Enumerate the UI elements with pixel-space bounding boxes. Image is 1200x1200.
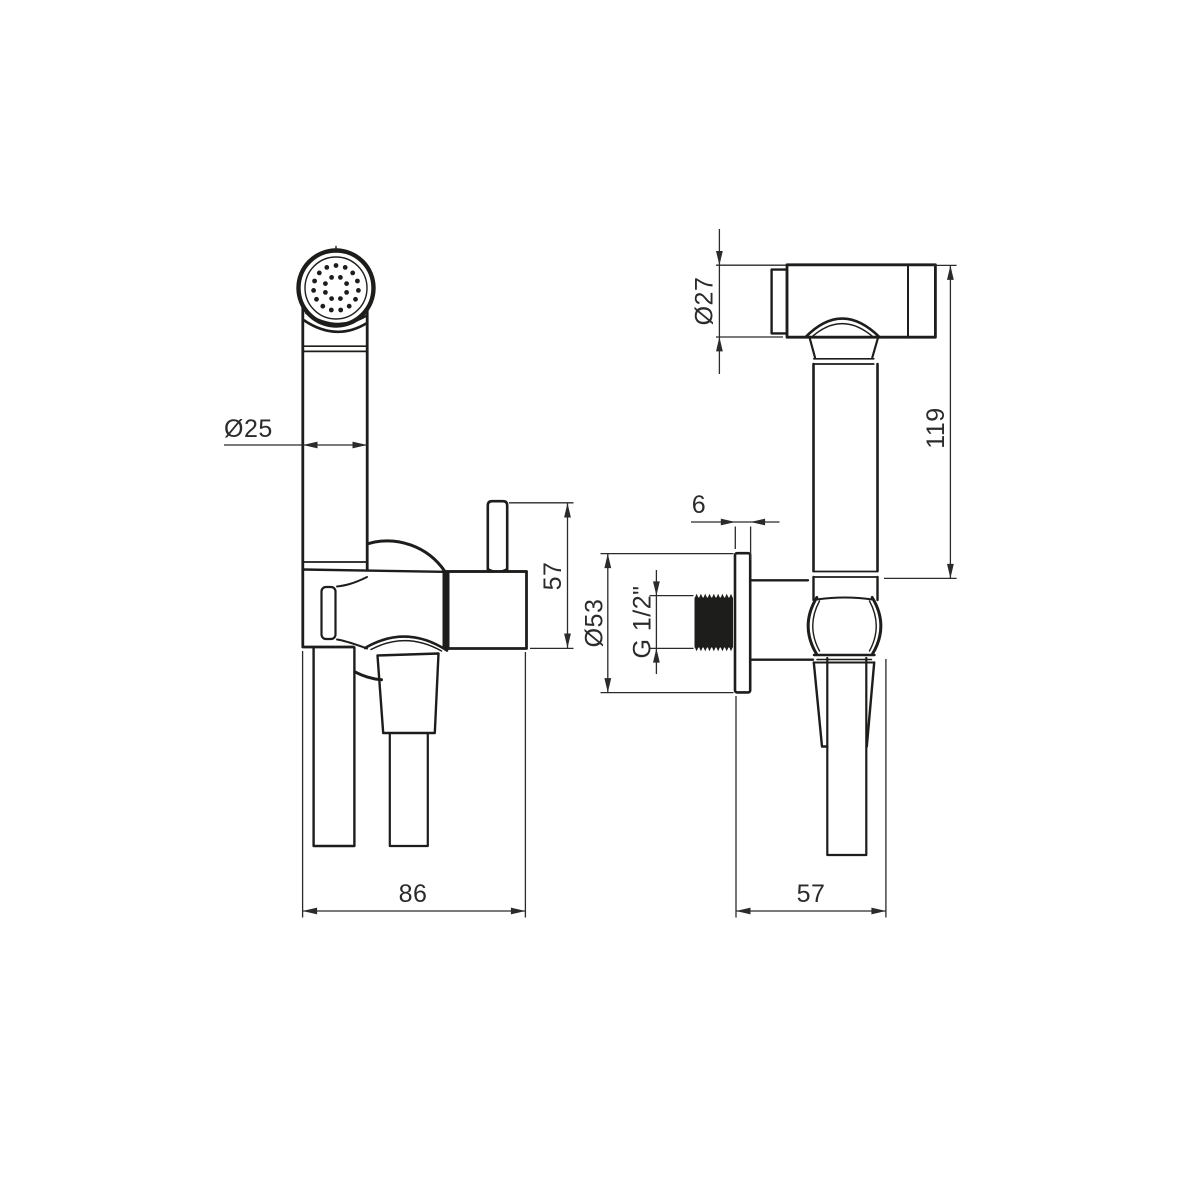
technical-drawing: Ø25 57 86 Ø27 119 6 Ø53 G 1/2" 57 bbox=[0, 0, 1200, 1200]
dim-line-head-diameter bbox=[716, 229, 786, 374]
side-neck-seam bbox=[814, 359, 874, 364]
side-holder bbox=[808, 598, 881, 660]
side-neck bbox=[810, 339, 878, 358]
arrow-valve-height-top bbox=[564, 503, 571, 518]
lower-tube-outline bbox=[314, 648, 355, 847]
bracket-inner-top bbox=[337, 577, 367, 587]
hose-tube bbox=[390, 733, 428, 846]
dim-label-head-diameter: Ø27 bbox=[691, 277, 719, 326]
arrow-handle-diameter-right bbox=[353, 442, 368, 449]
side-spray-head bbox=[772, 265, 936, 337]
escutcheon-arc-bottom bbox=[355, 672, 382, 680]
valve-body bbox=[447, 572, 527, 649]
front-hose bbox=[378, 654, 439, 847]
wall-pipe-lines bbox=[751, 580, 814, 659]
bracket-arch-outer bbox=[365, 637, 447, 651]
side-wall-pipe bbox=[751, 580, 814, 659]
side-handle-sides bbox=[814, 364, 878, 571]
side-escutcheon bbox=[735, 553, 750, 692]
side-thread bbox=[695, 594, 734, 651]
valve-shadow-band bbox=[443, 571, 450, 649]
arrow-escutcheon-diameter-top bbox=[604, 554, 611, 569]
front-handle-upper-seam bbox=[303, 346, 367, 351]
dim-label-side-depth: 57 bbox=[797, 880, 826, 908]
bracket-knob bbox=[322, 587, 336, 639]
arrow-escutcheon-thickness-left bbox=[721, 519, 736, 526]
dim-label-sprayer-length: 119 bbox=[922, 407, 950, 448]
arrow-escutcheon-diameter-bottom bbox=[604, 678, 611, 693]
thread-teeth-top bbox=[695, 594, 734, 599]
holder-top-edge bbox=[817, 598, 872, 600]
dim-label-escutcheon-thickness: 6 bbox=[692, 491, 706, 519]
arrow-sprayer-length-top bbox=[947, 265, 954, 280]
spray-dots bbox=[311, 263, 361, 312]
thread-body bbox=[695, 598, 734, 648]
arrow-handle-diameter-left bbox=[303, 442, 318, 449]
arrow-head-diameter-bottom bbox=[716, 337, 723, 351]
front-holder-bracket bbox=[303, 570, 447, 652]
side-head-body bbox=[787, 265, 935, 337]
side-hose-tube bbox=[827, 658, 866, 855]
arrow-escutcheon-thickness-right bbox=[751, 519, 766, 526]
thread-teeth-bottom bbox=[695, 647, 734, 652]
arrow-head-diameter-top bbox=[716, 251, 723, 265]
arrow-front-width-right bbox=[511, 908, 526, 915]
arrow-side-depth-left bbox=[736, 908, 751, 915]
front-valve-lever bbox=[488, 501, 507, 571]
dim-label-handle-diameter: Ø25 bbox=[224, 415, 273, 443]
side-handle-bottom-seam bbox=[814, 572, 878, 578]
front-lower-tube bbox=[314, 648, 355, 847]
arrow-front-width-left bbox=[303, 908, 318, 915]
side-shoulder-arc-outer bbox=[806, 319, 880, 338]
bracket-top-edge bbox=[303, 570, 443, 572]
dim-line-side-depth bbox=[736, 659, 886, 918]
side-head-nose-cap bbox=[772, 270, 787, 334]
hose-cone bbox=[378, 654, 439, 734]
front-handle bbox=[303, 306, 367, 570]
side-view bbox=[695, 265, 936, 855]
spray-head-outer-circle bbox=[299, 251, 374, 326]
escutcheon-arc-top bbox=[368, 541, 445, 571]
dim-label-thread: G 1/2" bbox=[629, 585, 657, 658]
side-hose bbox=[814, 658, 874, 855]
front-spray-head bbox=[299, 247, 374, 326]
dim-label-valve-height: 57 bbox=[539, 562, 567, 591]
front-valve bbox=[443, 571, 527, 649]
bracket-outline bbox=[303, 570, 354, 648]
arrow-side-depth-right bbox=[871, 908, 886, 915]
dim-label-front-width: 86 bbox=[399, 880, 428, 908]
dim-line-front-width bbox=[303, 651, 526, 918]
lever-outline bbox=[488, 501, 507, 571]
side-cone-sides bbox=[814, 663, 874, 747]
arrow-valve-height-bottom bbox=[564, 634, 571, 649]
holder-left-arc-inner bbox=[813, 601, 820, 651]
drawing-canvas: Ø25 57 86 Ø27 119 6 Ø53 G 1/2" 57 bbox=[0, 0, 1200, 1200]
dimension-labels: Ø25 57 86 Ø27 119 6 Ø53 G 1/2" 57 bbox=[224, 277, 950, 908]
side-handle bbox=[810, 339, 878, 601]
escutcheon-plate bbox=[735, 553, 750, 692]
dim-label-escutcheon-diameter: Ø53 bbox=[581, 599, 609, 648]
holder-right-arc-inner bbox=[870, 601, 877, 651]
dimension-arrows bbox=[303, 251, 954, 914]
front-view bbox=[299, 247, 527, 847]
arrow-sprayer-length-bottom bbox=[947, 564, 954, 579]
